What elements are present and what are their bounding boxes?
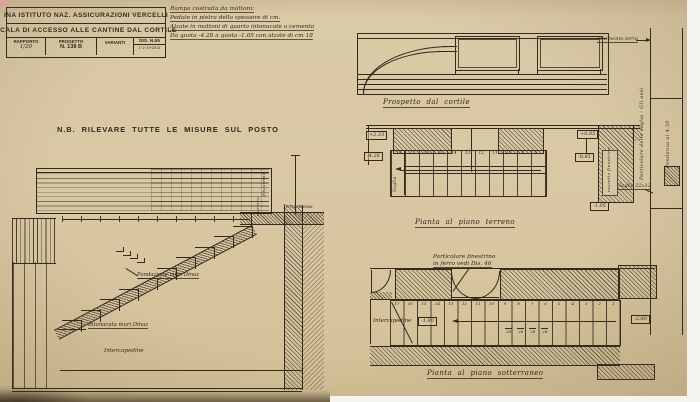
bottom-wall-hatch	[370, 346, 620, 366]
pavimento-label: Pavimento terra	[597, 36, 638, 43]
landing-line-2	[404, 173, 545, 174]
step-number: 8	[529, 151, 543, 158]
varianti-label: VARIANTI	[97, 40, 133, 45]
step-number: 16	[419, 151, 433, 158]
opening-right	[537, 36, 603, 71]
base-band-line	[357, 74, 607, 75]
step-number: 13	[444, 301, 458, 308]
step-number: 7	[525, 301, 539, 308]
step-number: 14	[447, 151, 461, 158]
rapporto-value: 1/20	[7, 44, 45, 50]
tread-dim: 28	[505, 328, 512, 334]
step-number: 11	[471, 301, 485, 308]
corner-shadow	[0, 386, 85, 402]
spec-note-line: Rampa costruita da mattoni:	[170, 6, 254, 13]
step-number: 15	[433, 151, 447, 158]
intercapedine-label: Intercapedine	[104, 348, 144, 354]
soglia-block-hatch	[664, 166, 680, 186]
plaster-fill	[37, 171, 151, 211]
step-number: 14	[431, 301, 445, 308]
dis-cell: DIS. N.55 1-2-39-XVII	[134, 38, 165, 55]
bottom-white-margin	[330, 396, 700, 402]
quota-box: -0.85	[575, 153, 594, 162]
soglia-vlabel: Soglia	[392, 160, 397, 192]
dim-ticks	[62, 216, 250, 222]
fondazione-label: Fondazione muri Dinaz	[137, 272, 199, 279]
step-number: 16	[404, 301, 418, 308]
base-tick	[537, 69, 538, 74]
quota-box: +0.85	[577, 130, 598, 139]
ground-slab-hatch	[240, 212, 324, 225]
tread-dims: 28282828	[505, 328, 548, 334]
wall-hatch-b	[500, 269, 620, 301]
direction-line	[401, 170, 541, 171]
muretto-vlabel: muretto	[255, 192, 260, 216]
quota-box: -1.05	[590, 202, 609, 211]
step-number: 4	[566, 301, 580, 308]
base-band-line	[357, 89, 607, 90]
step-number: 11	[488, 151, 502, 158]
step-number: 10	[485, 301, 499, 308]
section-wall-band	[36, 168, 272, 214]
step-number: 13	[461, 151, 475, 158]
step-number: 2	[593, 301, 607, 308]
step-number: 15	[417, 301, 431, 308]
quota-box: +2.23	[366, 131, 387, 140]
wall-top-line	[37, 172, 269, 173]
photo-corner-sliver	[0, 0, 9, 6]
door-leaf	[371, 270, 372, 292]
title-line-2: SCALA DI ACCESSO ALLE CANTINE DAL CORTIL…	[0, 27, 177, 34]
opening-inner-line	[540, 39, 600, 68]
detail-tick-2	[650, 208, 683, 209]
title-block: INA ISTITUTO NAZ. ASSICURAZIONI VERCELLI…	[6, 7, 166, 58]
quota-box: -1.80	[418, 317, 437, 326]
step-number: 8	[512, 301, 526, 308]
step-number: 6	[539, 301, 553, 308]
sill-hatch	[370, 292, 392, 299]
quota-leader	[586, 139, 587, 153]
rapporto-cell: RAPPORTO 1/20	[7, 38, 46, 55]
finestrino-vlabel: finestrino	[261, 168, 266, 196]
title-line-1: INA ISTITUTO NAZ. ASSICURAZIONI VERCELLI	[4, 12, 168, 19]
step-number: 1	[607, 301, 621, 308]
floor-line-upper	[60, 370, 302, 371]
earth-hatch	[302, 212, 324, 390]
brick-wall-fill	[151, 169, 269, 211]
direction-arrowhead-2	[452, 319, 458, 323]
quota-box: -2.80	[631, 315, 650, 324]
direction-line-2	[458, 321, 616, 322]
pendenza-vlabel: Pendenza al 4.50	[666, 118, 671, 168]
right-white-margin	[687, 0, 700, 402]
varianti-cell: VARIANTI	[97, 38, 134, 55]
pavimento-arrowhead	[646, 38, 651, 42]
intonacata-label: Intonacata muri Dinaz	[88, 322, 148, 329]
quota-box: -4.28	[364, 152, 383, 161]
muretto-finestrino-vlabel: muretto finestrino	[606, 152, 611, 192]
prospetto-caption: Prospetto dal cortile	[383, 98, 470, 108]
pianta-sotterraneo-caption: Pianta al piano sotterraneo	[427, 369, 543, 379]
left-wall-fill	[12, 262, 57, 388]
direction-arrowhead	[395, 167, 401, 171]
detail-tick-1	[650, 98, 683, 99]
step-number: 3	[579, 301, 593, 308]
intercapedine-label-2: Intercapedine	[373, 318, 411, 324]
dis-date: 1-2-39-XVII	[134, 45, 165, 50]
landing-line	[404, 166, 545, 167]
progetto-cell: PROGETTO N. 138 B	[46, 38, 97, 55]
wall-hatch-a	[395, 269, 452, 301]
base-tick	[600, 69, 601, 74]
step-number: 9	[498, 301, 512, 308]
tread-dim: 28	[517, 328, 524, 334]
step-numbers-terreno: 18171615141312111098	[392, 151, 543, 158]
pole-cap	[291, 155, 300, 156]
intonacata-leader	[58, 329, 86, 330]
spec-note-line: Pedate in pietra dello spessore di cm.	[170, 15, 280, 22]
spec-note: Rampa costruita da mattoni:Pedate in pie…	[170, 6, 350, 42]
step-number: 12	[458, 301, 472, 308]
step-number: 12	[474, 151, 488, 158]
progetto-value: N. 138 B	[46, 44, 96, 50]
drawing-sheet: INA ISTITUTO NAZ. ASSICURAZIONI VERCELLI…	[0, 0, 700, 402]
step-number: 17	[406, 151, 420, 158]
nb-heading: N.B. RILEVARE TUTTE LE MISURE SUL POSTO	[57, 125, 279, 134]
base-tick	[518, 69, 519, 74]
base-tick	[455, 69, 456, 74]
detail-vline-2	[682, 28, 683, 335]
foundation-step	[137, 258, 145, 263]
particolare-soglia-vlabel: Particolare della soglia - Gli assi	[640, 70, 645, 180]
bottom-wall-step-hatch	[597, 364, 655, 380]
door-sill-line	[451, 297, 499, 298]
detail-vline-1	[650, 28, 651, 335]
step-number: 5	[552, 301, 566, 308]
spec-note-line: Da quota -4.28 a quota -1.05 con alzate …	[170, 33, 313, 40]
spec-note-line: Alzate in mattoni di quarto intonacate a…	[170, 24, 314, 31]
step-number: 9	[516, 151, 530, 158]
base-band-line	[357, 84, 607, 85]
grate-fill	[12, 218, 56, 264]
retaining-wall-hatch	[284, 205, 303, 390]
step-number: 10	[502, 151, 516, 158]
base-band-line	[357, 79, 607, 80]
tread-dim: 28	[529, 328, 536, 334]
wall-hatch-c	[618, 265, 657, 299]
step-numbers-sotterraneo: 1716151413121110987654321	[390, 301, 620, 308]
opening-left	[455, 36, 520, 71]
detail-note-line2: in ferro vedi Dis. 46	[433, 261, 492, 268]
pianta-terreno-caption: Pianta al piano terreno	[415, 218, 515, 228]
detail-note-line1: Particolare finestrino	[433, 254, 495, 260]
terra-smossa-label: Terra smossa	[283, 205, 313, 210]
opening-inner-line	[458, 39, 517, 68]
landing-edge-line	[370, 300, 371, 344]
tread-dim: 28	[541, 328, 548, 334]
